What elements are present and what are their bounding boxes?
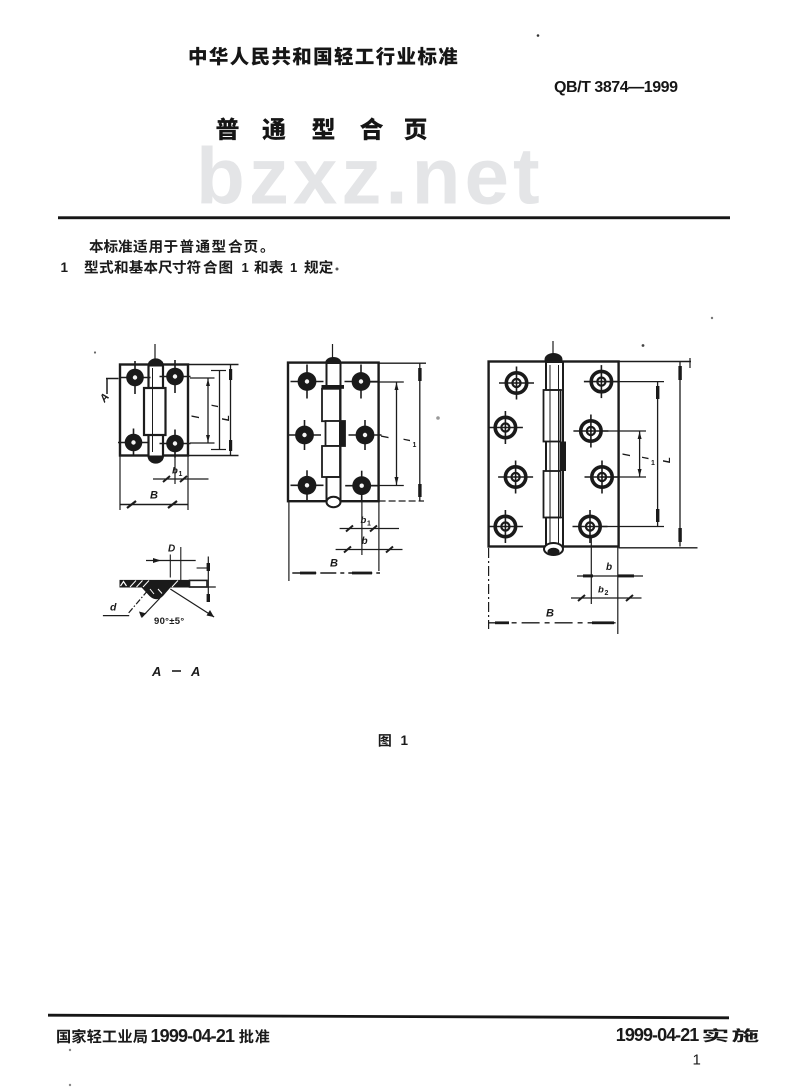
svg-text:l: l [191,415,202,418]
svg-text:L: L [221,415,232,421]
svg-text:B: B [150,490,158,502]
svg-text:1: 1 [651,460,655,467]
svg-text:1: 1 [242,260,249,275]
svg-text:A: A [190,664,200,679]
svg-text:QB/T 3874—1999: QB/T 3874—1999 [554,79,678,96]
svg-text:1: 1 [401,733,409,748]
svg-text:L: L [662,457,673,463]
svg-text:d: d [110,602,117,614]
svg-text:1: 1 [290,260,297,275]
svg-text:1999-04-21: 1999-04-21 [616,1025,700,1045]
svg-text:1: 1 [61,260,69,275]
svg-text:1999-04-21: 1999-04-21 [151,1026,236,1046]
svg-text:b: b [362,536,368,547]
svg-text:l: l [402,438,413,441]
svg-text:b: b [598,585,604,596]
svg-text:bzxz.net: bzxz.net [196,132,544,221]
svg-text:A: A [97,391,112,406]
svg-text:b: b [361,515,367,526]
svg-text:l: l [381,435,392,438]
svg-text:b: b [606,562,612,573]
svg-text:2: 2 [605,590,609,597]
svg-text:B: B [330,558,338,570]
svg-text:D: D [168,544,175,555]
svg-text:1: 1 [367,521,371,528]
svg-text:l: l [210,404,221,407]
svg-text:1: 1 [413,442,417,449]
svg-text:l: l [641,456,652,459]
svg-text:1: 1 [179,471,183,478]
svg-text:90°±5°: 90°±5° [154,616,184,627]
svg-text:1: 1 [693,1052,701,1069]
svg-text:B: B [546,608,554,620]
svg-text:b: b [172,466,178,477]
svg-text:l: l [622,453,633,456]
svg-text:A: A [151,664,161,679]
